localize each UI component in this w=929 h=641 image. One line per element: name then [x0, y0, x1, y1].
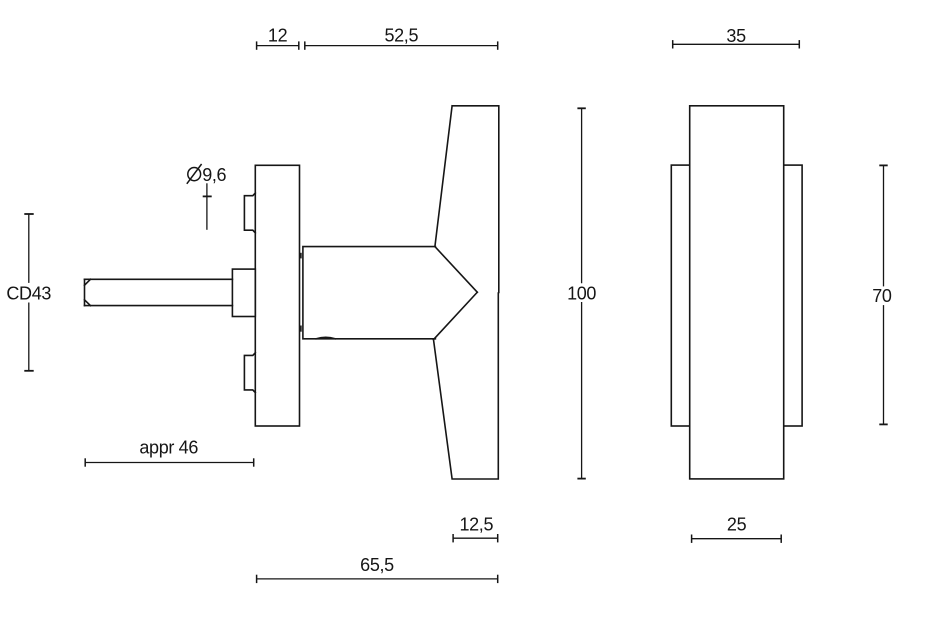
svg-text:appr 46: appr 46: [139, 437, 198, 457]
svg-text:12,5: 12,5: [459, 515, 493, 535]
svg-text:70: 70: [872, 286, 892, 306]
svg-text:CD43: CD43: [6, 284, 51, 304]
svg-text:65,5: 65,5: [360, 555, 394, 575]
svg-text:9,6: 9,6: [202, 165, 226, 185]
svg-text:25: 25: [727, 515, 747, 535]
svg-text:35: 35: [726, 26, 746, 46]
svg-text:52,5: 52,5: [384, 25, 418, 45]
svg-text:12: 12: [268, 25, 288, 45]
svg-text:100: 100: [567, 283, 596, 303]
